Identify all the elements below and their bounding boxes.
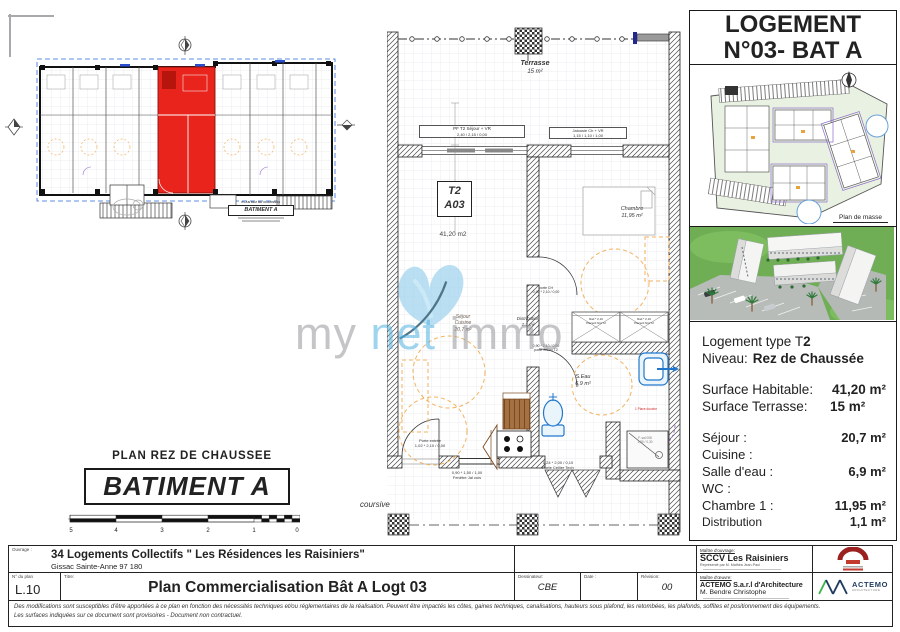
salle-eau-label: S.Eau 6,9 m²: [560, 374, 606, 388]
surface-habitable-line: Surface Habitable: 41,20 m²: [702, 382, 886, 397]
room-row: WC :: [702, 481, 886, 496]
unit-info-panel: LOGEMENT N°03- BAT A: [689, 10, 897, 541]
room-row: Séjour : 20,7 m²: [702, 430, 886, 445]
panel-title-line2: N°03- BAT A: [690, 38, 896, 63]
owner-name: SCCV Les Raisiniers: [700, 553, 809, 563]
window-sejour: [422, 147, 527, 155]
svg-text:1: 1: [252, 528, 256, 534]
unit-level-line: Niveau: Rez de Chaussée: [702, 351, 886, 366]
svg-text:2: 2: [206, 528, 210, 534]
south-compass-icon: [179, 212, 191, 230]
plan-number: L.10: [15, 582, 60, 597]
drafter-value: CBE: [515, 582, 580, 593]
overview-mini-titleblock: PLAN REZ DE CHAUSSEE BATIMENT A: [228, 201, 294, 222]
closet-1-label: Rail * 2,10 Placard Nid T2: [574, 318, 618, 326]
drafter-label: Dessinateur:: [518, 574, 543, 579]
owner-cell: Maître d'ouvrage: SCCV Les Raisiniers Re…: [697, 546, 813, 572]
porte-ch-label: porte CH 0,90 * 2,10 / 0,00: [520, 286, 572, 295]
actemo-logo-text: ACTEMO ARCHITECTURE: [852, 581, 888, 592]
drafter-cell: Dessinateur: CBE: [515, 573, 581, 600]
douche-flag-label: 1 Place douche: [618, 407, 674, 411]
drawing-title: Plan Commercialisation Bât A Logt 03: [61, 579, 514, 597]
architect-cell: Maître d'œuvre: ACTEMO S.a.r.l d'Archite…: [697, 573, 813, 600]
svg-text:5: 5: [69, 528, 73, 534]
unit-details: Logement type T 2 Niveau: Rez de Chaussé…: [690, 322, 896, 529]
drawing-sheet: PLAN REZ DE CHAUSSEE BATIMENT A PLAN REZ…: [0, 0, 900, 632]
revision-cell: Révision: 00: [638, 573, 697, 600]
disclaimer-line2: Les surfaces indiquées sur ce document s…: [14, 613, 242, 619]
room-row: Cuisine :: [702, 447, 886, 462]
fine-print-line: [228, 217, 294, 219]
architect-name: ACTEMO S.a.r.l d'Architecture: [700, 580, 809, 589]
window-chambre-label: Jalousie Ch + VR 1,15 / 1,10 / 1,00: [549, 127, 627, 139]
building-title-box: BATIMENT A: [84, 468, 290, 505]
room-row: Chambre 1 : 11,95 m²: [702, 498, 886, 513]
plan-masse-caption: Plan de masse: [833, 214, 888, 223]
owner-logo-cell: [813, 546, 892, 572]
mini-heading: PLAN REZ DE CHAUSSEE: [228, 201, 294, 204]
architect-logo-cell: ACTEMO ARCHITECTURE: [813, 573, 892, 600]
fine-print-line: [703, 569, 781, 571]
north-compass-icon: [179, 36, 191, 55]
window-chambre: [571, 147, 623, 155]
owner-rep: Représenté par M. Mathéa Jean-Paul: [700, 563, 809, 567]
surface-terrasse-line: Surface Terrasse: 15 m²: [702, 399, 886, 414]
disclaimer-line1: Des modifications sont susceptibles d'êt…: [14, 604, 820, 610]
site-plan-drawing: [691, 66, 895, 224]
plan-level-heading: PLAN REZ DE CHAUSSEE: [92, 450, 292, 462]
disclaimer-cell: Des modifications sont susceptibles d'êt…: [9, 601, 892, 626]
fenetre-cuisine-label: 0,90 * 1,50 / 1,00 Fenêtre Jal cuis: [437, 470, 497, 480]
fine-print-line: [228, 220, 294, 222]
room-row: Distribution 1,1 m²: [702, 515, 886, 529]
empty-cell: [515, 546, 697, 572]
window-sejour-label: PF T2 Séjour + VR 2,40 / 2,15 / 0,00: [419, 125, 525, 138]
svg-text:3: 3: [160, 528, 164, 534]
panel-title: LOGEMENT N°03- BAT A: [690, 11, 896, 65]
ouvrage-label: Ouvrage :: [12, 547, 32, 552]
coursive-label: coursive: [360, 500, 420, 510]
scale-numbers: 5 4 3 2 1 0: [69, 528, 299, 534]
date-label: Date :: [584, 574, 596, 579]
overview-plan-drawing: [25, 35, 355, 240]
date-cell: Date :: [581, 573, 638, 600]
project-cell: Ouvrage : 34 Logements Collectifs " Les …: [9, 546, 515, 572]
title-label: Titre:: [64, 574, 74, 579]
room-row: Salle d'eau : 6,9 m²: [702, 464, 886, 479]
terrace-label: Terrasse 15 m²: [505, 60, 565, 76]
project-name: 34 Logements Collectifs " Les Résidences…: [51, 549, 514, 561]
unit-tag-box: T2 A03: [437, 181, 472, 217]
mini-building-box: BATIMENT A: [228, 205, 294, 216]
shower-note-label: F. sal 008 1,80 / 0,30: [622, 436, 668, 444]
west-compass-icon: [4, 116, 24, 138]
aerial-render: [690, 227, 894, 320]
fine-print-line: [703, 598, 789, 600]
unit-area-label: 41,20 m2: [425, 231, 481, 239]
porte-seau-label: 0,90 * 2,10 / 0,00 porte S.Eau T2: [520, 344, 572, 353]
svg-text:4: 4: [114, 528, 118, 534]
porte-entree-label: Porte entrée 1,02 * 2,10 / 0,00: [402, 438, 458, 448]
actemo-logo-icon: [817, 576, 849, 598]
title-block: Ouvrage : 34 Logements Collectifs " Les …: [8, 545, 893, 627]
revision-value: 00: [638, 582, 696, 593]
panel-title-line1: LOGEMENT: [690, 12, 896, 37]
svg-text:0: 0: [295, 528, 299, 534]
plan-number-label: N° du plan: [12, 574, 33, 579]
highlighted-unit-03: [158, 67, 215, 193]
porte-cellier-label: 1,24 * 2,00 / 0,10 Porte Cellier Tech: [528, 460, 588, 470]
unit-type-line: Logement type T 2: [702, 334, 886, 349]
distribution-label: Distribution 1,1 m²: [505, 316, 551, 327]
sejour-label: Séjour Cuisine 20,7 m²: [440, 314, 486, 333]
project-location: Gissac Sainte-Anne 97 180: [51, 562, 514, 571]
east-compass-icon: [337, 120, 355, 130]
architect-person: M. Bendre Christophe: [700, 589, 809, 596]
plan-number-cell: N° du plan L.10: [9, 573, 61, 600]
sccv-logo-icon: [833, 547, 873, 571]
revision-label: Révision:: [641, 574, 660, 579]
site-plan-section: Plan de masse: [690, 66, 896, 227]
drawing-title-cell: Titre: Plan Commercialisation Bât A Logt…: [61, 573, 515, 600]
render-section: [690, 227, 896, 322]
closet-2-label: Rail * 2,10 Placard Nid T2: [622, 318, 666, 326]
closets: [572, 312, 668, 342]
scale-bar: 5 4 3 2 1 0: [68, 512, 300, 536]
chambre-label: Chambre 11,95 m²: [607, 206, 657, 220]
